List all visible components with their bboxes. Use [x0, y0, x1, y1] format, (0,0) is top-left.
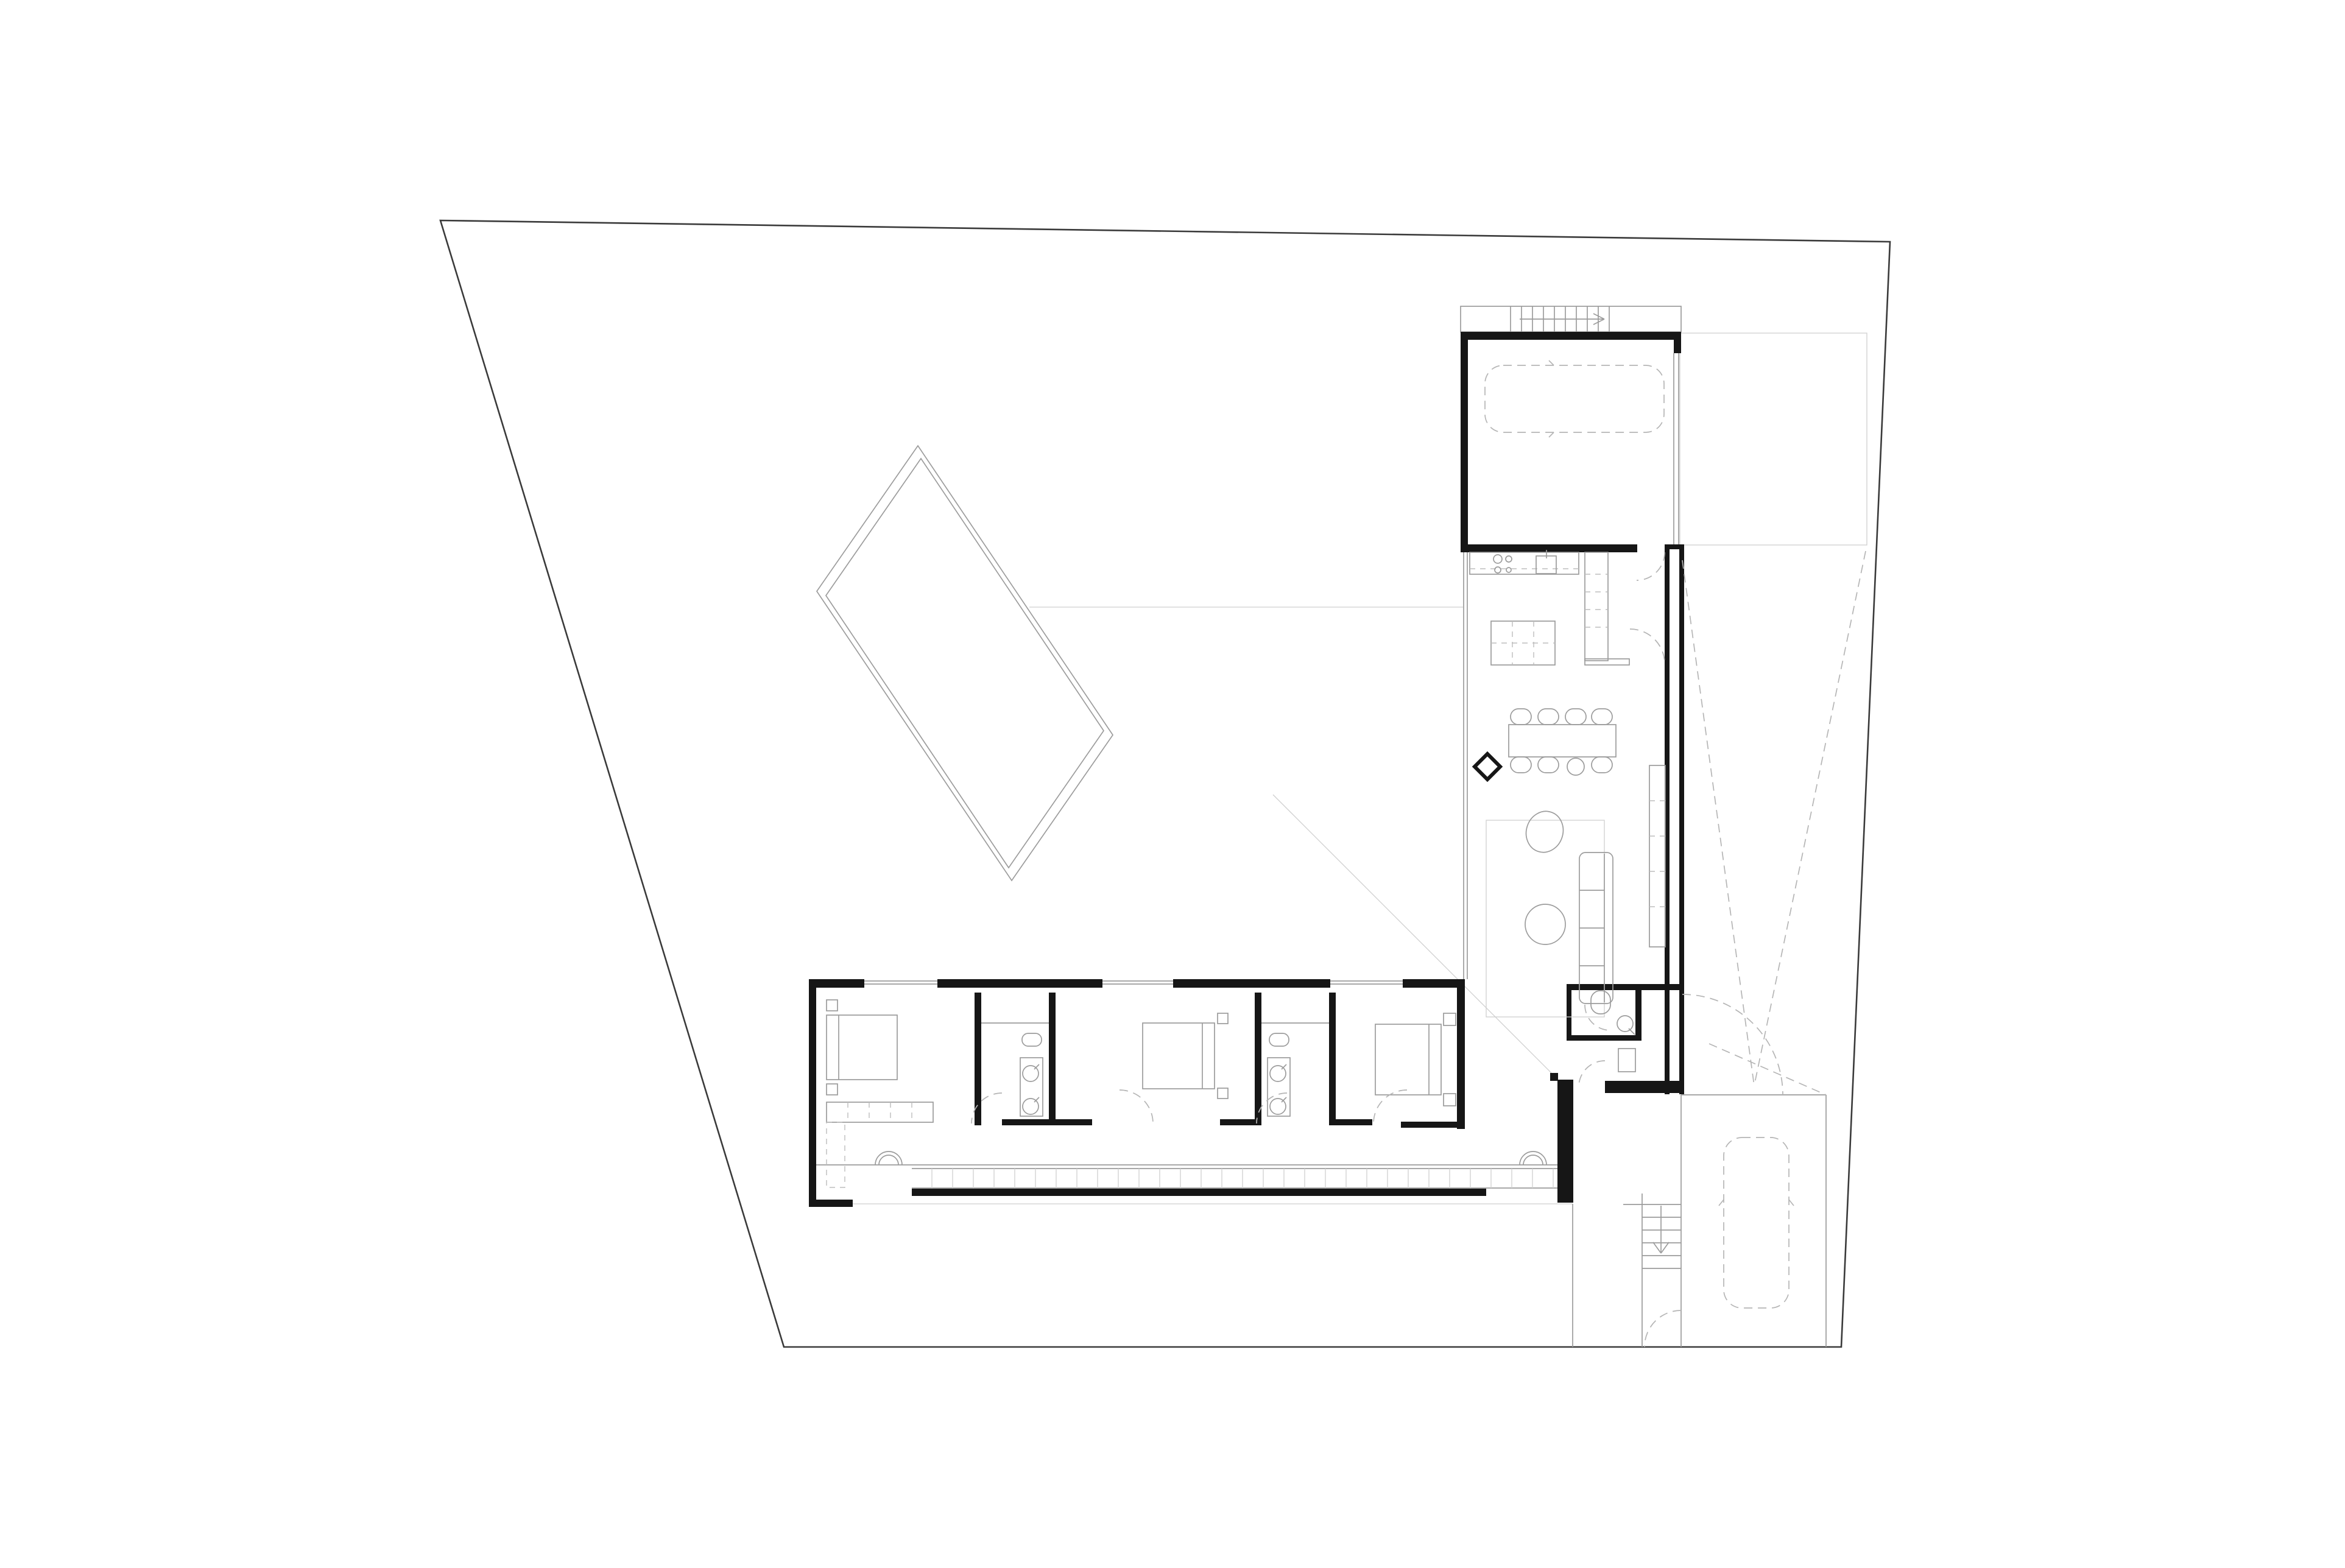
sight-line [1273, 795, 1551, 1073]
kitchen-tall-cabinet [1585, 552, 1608, 661]
master-wall-east [1457, 979, 1465, 1129]
drive-sightline-left [1682, 560, 1754, 1086]
wing-wall-north-2 [937, 979, 1102, 988]
entry-door-swing [1579, 1061, 1605, 1087]
garage-wall-top [1461, 332, 1681, 340]
wing-wall-north-1 [809, 979, 864, 988]
floor-plan-canvas [0, 0, 2345, 1568]
hob-3 [1495, 567, 1501, 573]
hob-2 [1506, 556, 1512, 562]
drive-sightline-diagonal [1709, 1044, 1826, 1095]
door-marker-2-inner [1523, 1155, 1543, 1165]
armchair [1521, 806, 1568, 857]
vestibule-wall-south [1605, 1081, 1681, 1093]
wc-wall-top [1567, 984, 1683, 990]
bed-3 [1375, 1024, 1441, 1095]
wing-wall-north-4 [1403, 979, 1465, 988]
pool-outer [817, 446, 1113, 881]
drive-sightline-right [1754, 551, 1866, 1086]
dining-chair-end [1567, 758, 1584, 775]
bath2-wall-south [1336, 1119, 1372, 1125]
entry-steps-arrowhead-b [1593, 319, 1604, 325]
dining-chair [1538, 709, 1559, 725]
dining-chair [1592, 757, 1612, 773]
gate-swing-small [1645, 1310, 1681, 1347]
wardrobe-1 [827, 1102, 933, 1122]
tall-wall-east-leaf [1679, 544, 1684, 1094]
coffee-table [1525, 904, 1565, 944]
page [0, 0, 2345, 1568]
freestanding-wall-head [1550, 1073, 1558, 1081]
freestanding-wall [1557, 1080, 1573, 1203]
site-boundary [440, 220, 1890, 1347]
master-wall-south [1401, 1122, 1465, 1128]
wing-wall-north-3 [1173, 979, 1330, 988]
kitchen-door-swing [1637, 552, 1665, 580]
car1-mirror-b [1549, 432, 1554, 437]
partition-3 [1255, 993, 1261, 1125]
nightstand [1444, 1013, 1456, 1025]
bath1-toilet [1022, 1033, 1042, 1046]
dining-chair [1565, 709, 1586, 725]
dining-table [1509, 725, 1616, 757]
hob-1 [1493, 555, 1502, 563]
car2-mirror-b [1789, 1200, 1794, 1206]
kitchen-counter [1470, 552, 1579, 574]
garage-wall-bottom [1461, 544, 1637, 552]
partition-2 [1049, 993, 1056, 1125]
gate-swing-large [1682, 994, 1783, 1095]
pantry-door-swing [1630, 629, 1665, 664]
sideboard [1649, 765, 1665, 947]
car1-mirror-a [1549, 360, 1554, 365]
dining-chair [1511, 757, 1531, 773]
dining-chair [1538, 757, 1559, 773]
wc-sink-tap [1629, 1028, 1635, 1035]
partition-4 [1329, 993, 1336, 1125]
pool-inner [826, 459, 1104, 868]
stairs-arrowhead-b [1661, 1242, 1669, 1253]
wc-shower-arc [1585, 1005, 1610, 1030]
bed2-door-swing [1120, 1090, 1153, 1123]
car-in-garage [1485, 365, 1664, 432]
nightstand [827, 1084, 837, 1095]
wc-sink [1617, 1016, 1633, 1032]
wc-wall-bottom [1567, 1035, 1635, 1041]
wing-wall-sw-corner [809, 1200, 853, 1207]
kitchen-sink [1536, 556, 1556, 574]
bath1-vanity [1020, 1058, 1043, 1116]
wc-toilet [1591, 991, 1610, 1014]
floor-plan-svg [0, 0, 2345, 1568]
door-marker-1-inner [879, 1155, 898, 1165]
garage-wall-step [1674, 340, 1681, 353]
nightstand [1444, 1094, 1456, 1106]
nightstand [1218, 1013, 1228, 1024]
bath1-wall-south [1002, 1119, 1049, 1125]
bed-2 [1143, 1023, 1215, 1089]
nightstand [827, 1000, 837, 1011]
bed2-wall-south-b [1220, 1119, 1255, 1125]
entry-steps-arrowhead-a [1593, 314, 1604, 319]
wing-wall-south [912, 1189, 1486, 1196]
bath2-toilet [1269, 1033, 1289, 1046]
wc-wall-left [1567, 984, 1571, 1040]
hob-4 [1506, 568, 1511, 572]
car-on-parking [1724, 1137, 1789, 1308]
bed2-wall-south-a [1056, 1119, 1092, 1125]
car2-mirror-a [1719, 1200, 1724, 1206]
garage-terrace-pad [1680, 333, 1867, 545]
garage-wall-left [1461, 332, 1468, 552]
vestibule-cabinet [1618, 1049, 1635, 1072]
kitchen-cabinet-base [1585, 659, 1629, 665]
closet-1 [827, 1122, 845, 1187]
column-marker-diamond [1475, 754, 1500, 779]
stairs-arrowhead-a [1653, 1242, 1661, 1253]
dining-chair [1511, 709, 1531, 725]
wing-wall-west [809, 979, 816, 1206]
bed-1 [827, 1015, 897, 1080]
nightstand [1218, 1088, 1228, 1099]
bath2-vanity [1268, 1058, 1290, 1116]
dining-chair [1592, 709, 1612, 725]
wc-wall-east [1635, 990, 1641, 1041]
